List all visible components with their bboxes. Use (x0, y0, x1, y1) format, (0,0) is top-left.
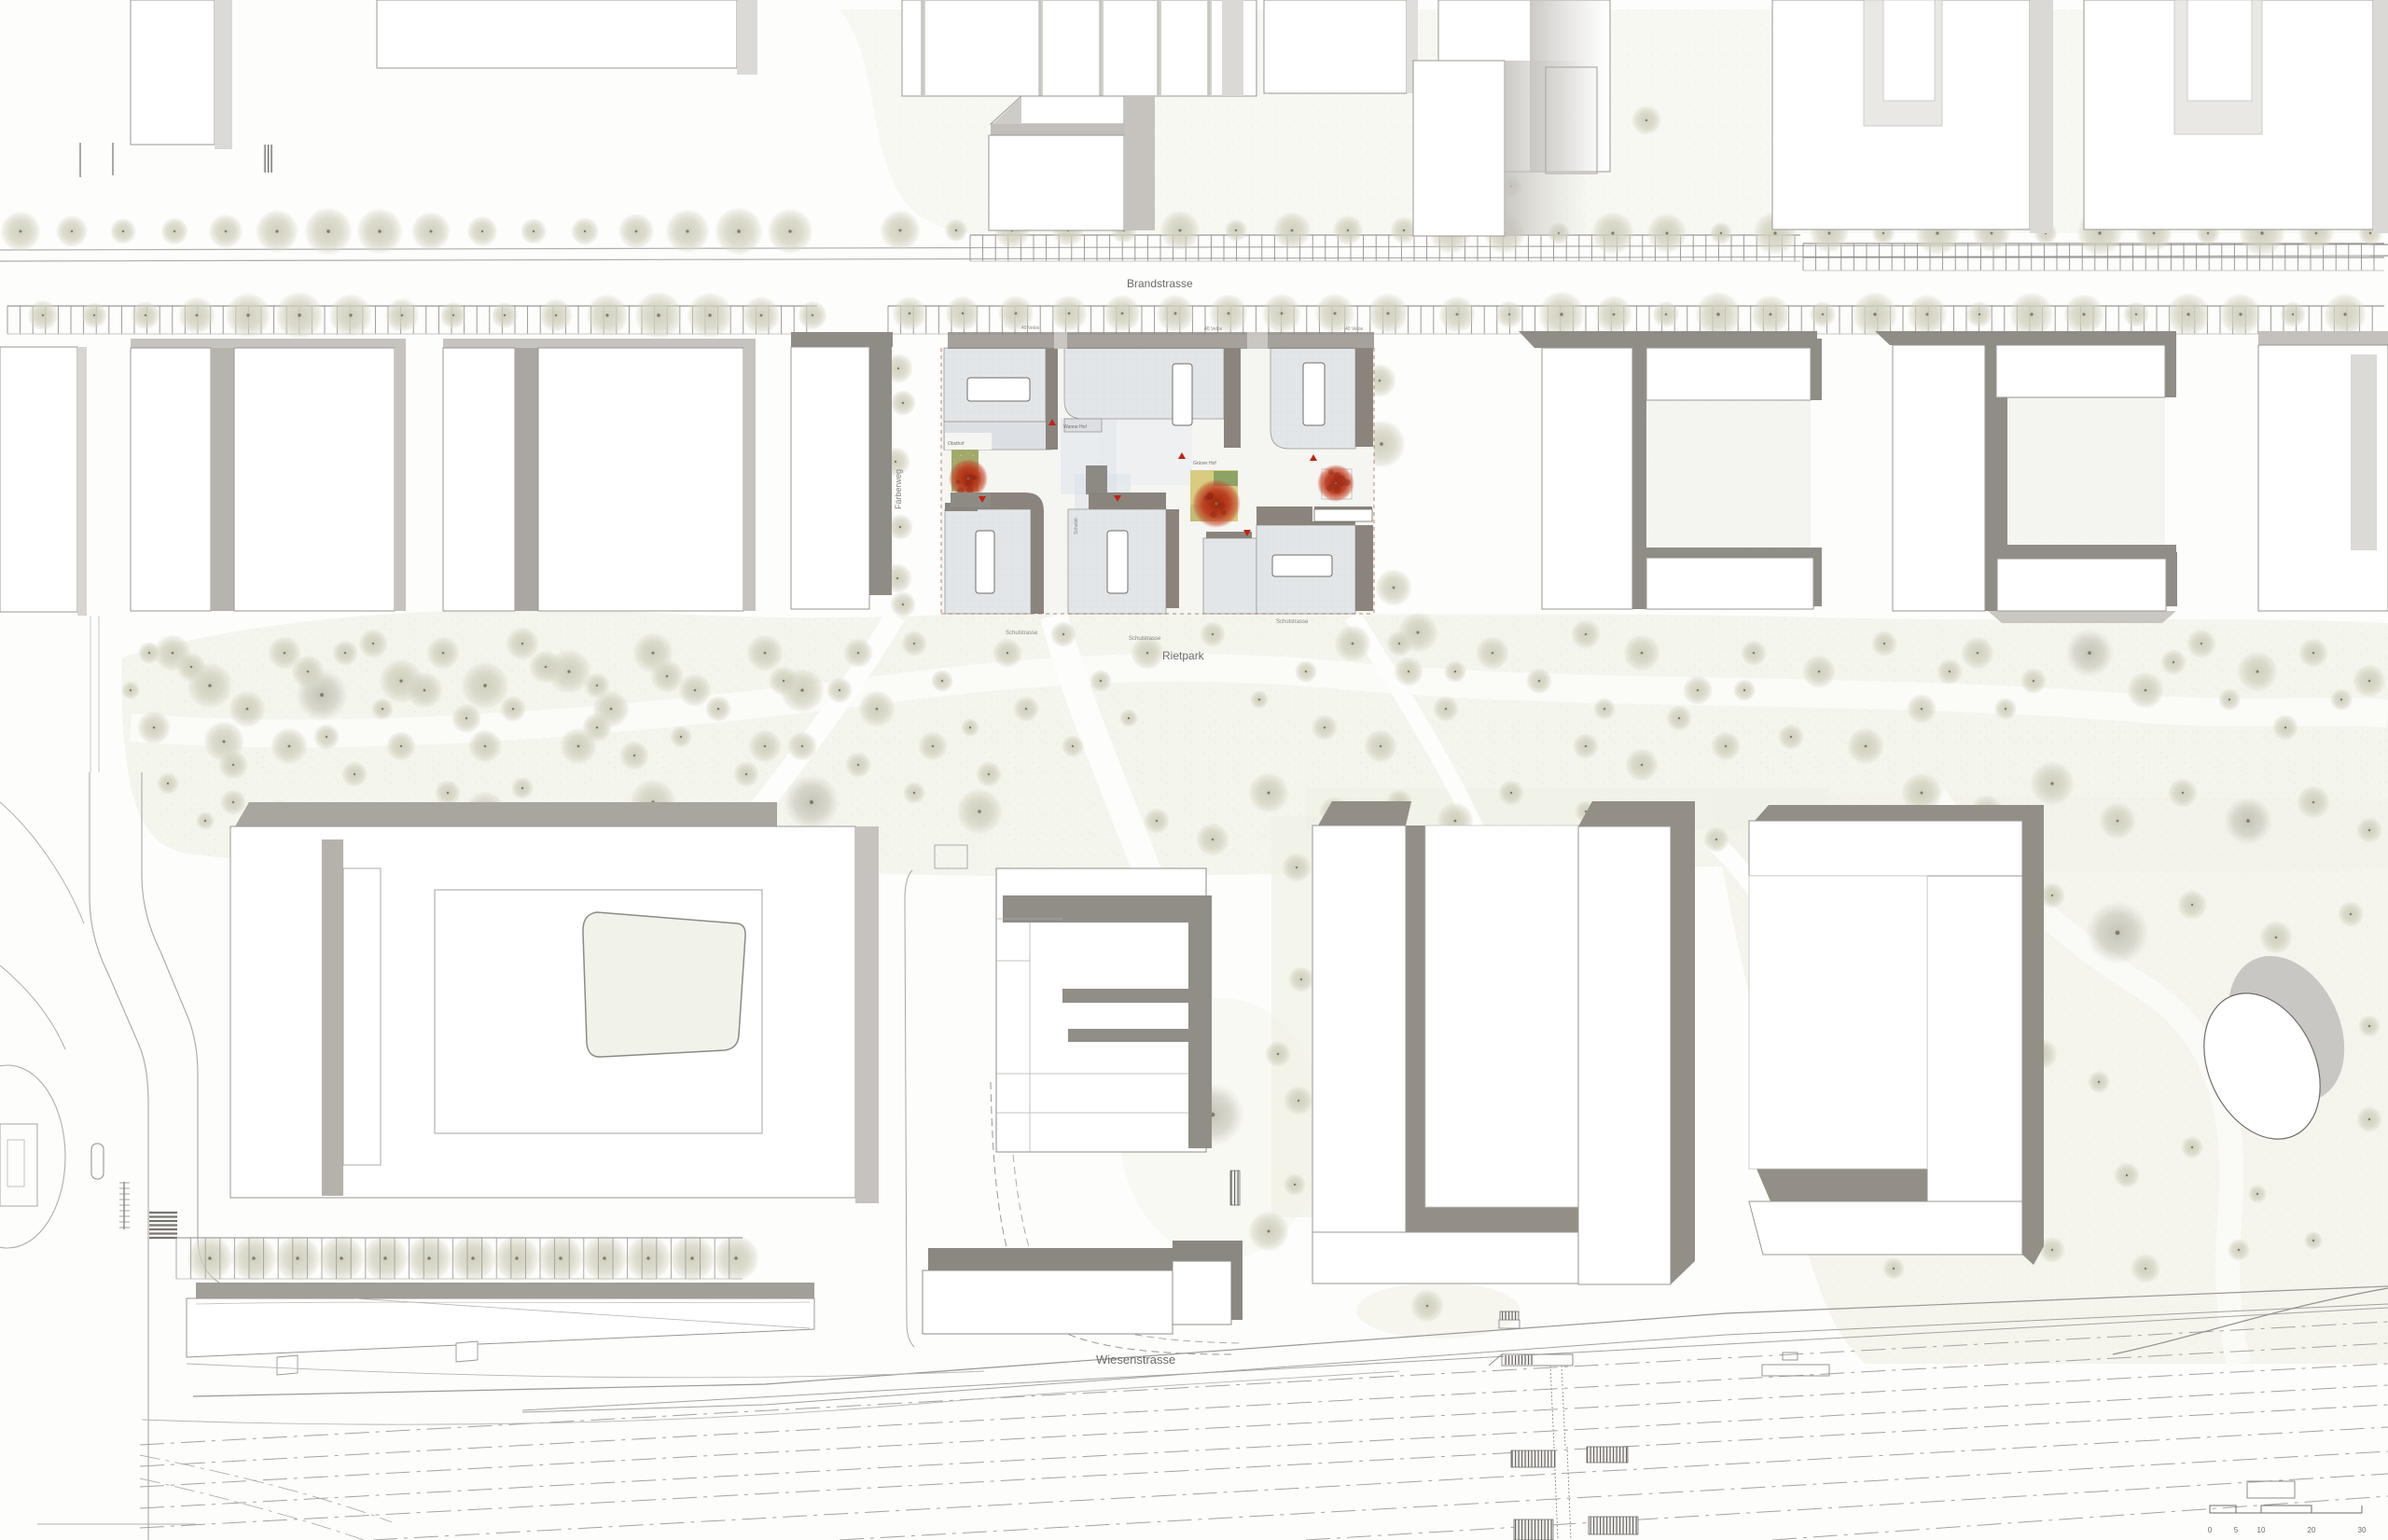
svg-text:40 Velos: 40 Velos (1021, 326, 1040, 331)
svg-text:Brandstrasse: Brandstrasse (1127, 277, 1193, 290)
svg-text:5: 5 (2234, 1526, 2239, 1534)
svg-text:0: 0 (2208, 1526, 2213, 1534)
svg-text:40 Velos: 40 Velos (1345, 326, 1364, 332)
svg-text:Schulstr.: Schulstr. (1074, 517, 1079, 534)
svg-text:Schulstrasse: Schulstrasse (1129, 636, 1161, 642)
svg-text:Grüner Hof: Grüner Hof (1193, 461, 1216, 466)
svg-text:10: 10 (2257, 1526, 2266, 1534)
svg-text:Färberweg: Färberweg (894, 469, 903, 509)
svg-text:20: 20 (2308, 1526, 2316, 1534)
svg-text:Schulstrasse: Schulstrasse (1006, 631, 1038, 636)
svg-text:Wanne Hof: Wanne Hof (1063, 424, 1087, 430)
svg-text:Wiesenstrasse: Wiesenstrasse (1096, 1353, 1175, 1367)
svg-text:Rietpark: Rietpark (1162, 649, 1205, 662)
svg-text:40 Velos: 40 Velos (1204, 326, 1223, 332)
svg-text:Obsthof: Obsthof (948, 441, 965, 447)
svg-text:Schulstrasse: Schulstrasse (1276, 619, 1309, 625)
svg-text:30: 30 (2358, 1526, 2367, 1534)
